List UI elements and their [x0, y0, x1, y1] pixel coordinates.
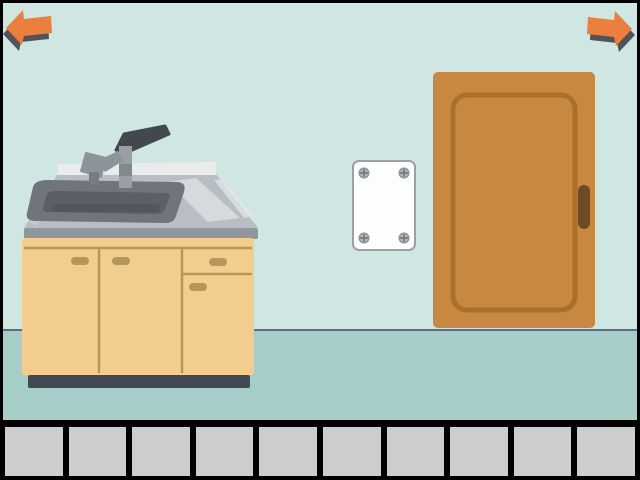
nav-right-button[interactable] [576, 4, 638, 58]
inventory-slot-9[interactable] [514, 427, 572, 476]
door[interactable] [430, 70, 600, 332]
inventory-slot-4[interactable] [196, 427, 254, 476]
screw-icon [358, 232, 370, 244]
screw-icon [398, 167, 410, 179]
inventory-slot-3[interactable] [132, 427, 190, 476]
screw-icon [398, 232, 410, 244]
arrow-right-icon [576, 4, 638, 58]
inventory-bar [0, 420, 640, 480]
wall-sign[interactable] [352, 160, 416, 251]
inventory-slot-6[interactable] [323, 427, 381, 476]
inventory-slot-5[interactable] [259, 427, 317, 476]
kitchen-sink[interactable] [18, 120, 263, 392]
inventory-slot-8[interactable] [450, 427, 508, 476]
inventory-slot-10[interactable] [577, 427, 635, 476]
inventory-slot-2[interactable] [69, 427, 127, 476]
inventory-slot-7[interactable] [387, 427, 445, 476]
sink-illustration [18, 120, 263, 392]
arrow-left-icon [2, 4, 62, 56]
cabinet-base [28, 375, 250, 388]
inventory-slot-1[interactable] [5, 427, 63, 476]
door-handle[interactable] [578, 185, 590, 229]
nav-left-button[interactable] [2, 4, 62, 56]
screw-icon [358, 167, 370, 179]
door-illustration [430, 70, 600, 332]
game-stage [0, 0, 640, 480]
